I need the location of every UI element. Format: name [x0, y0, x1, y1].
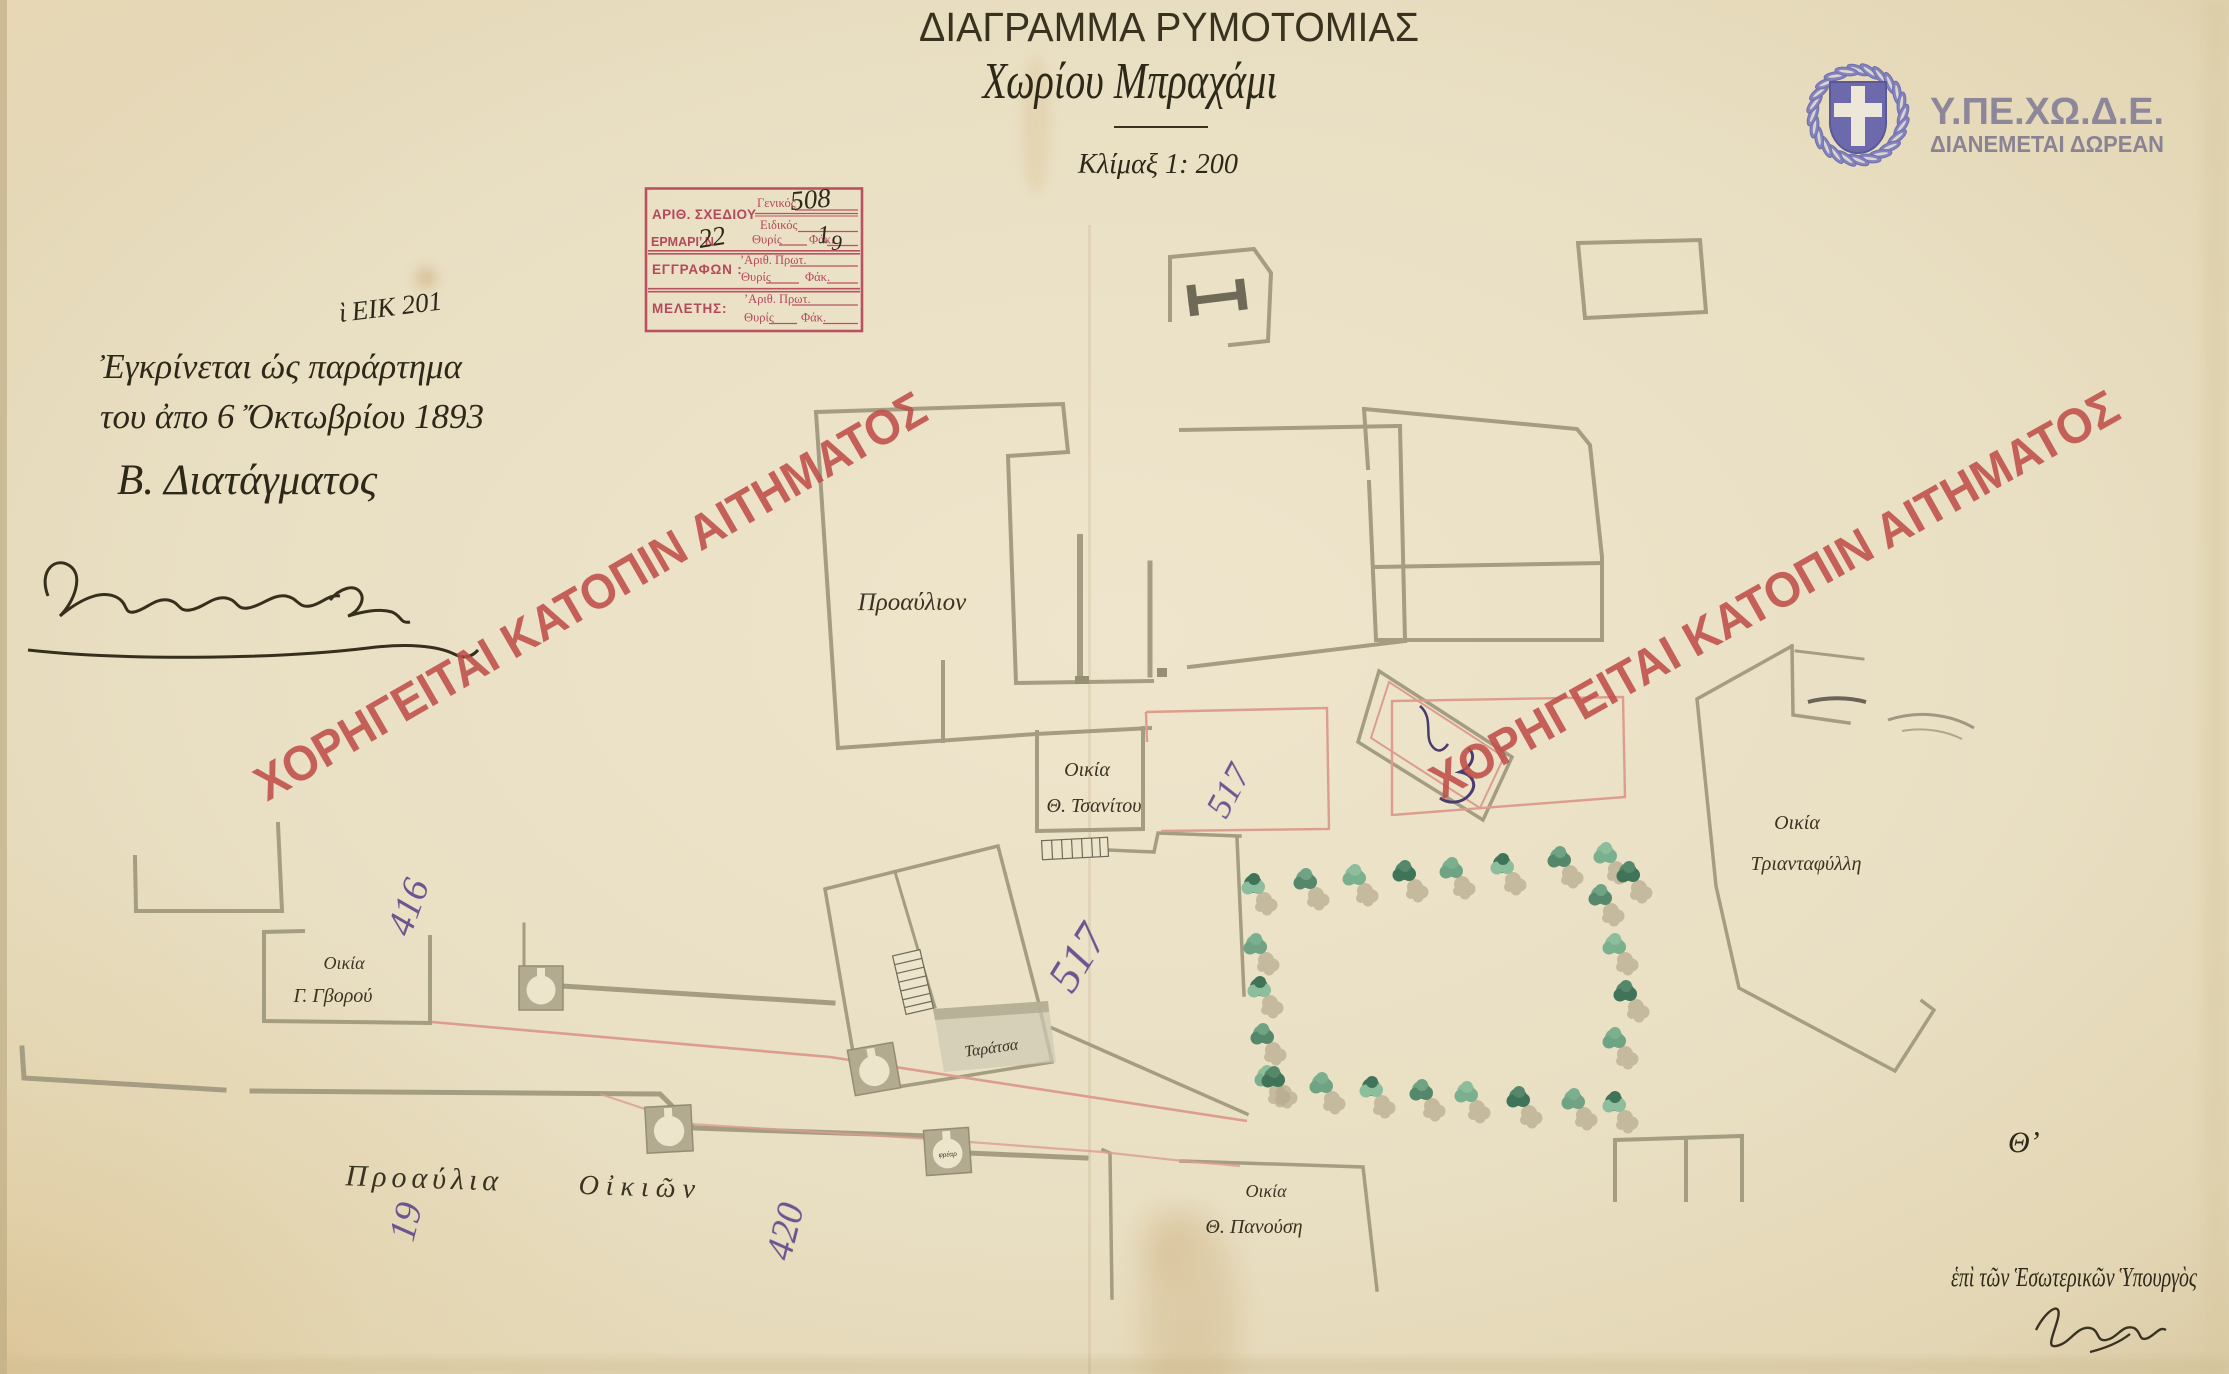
svg-text:του ἀπο 6 Ὄκτωβρίου 1893: του ἀπο 6 Ὄκτωβρίου 1893 [100, 397, 484, 436]
svg-text:ΔΙΑΓΡΑΜΜΑ ΡΥΜΟΤΟΜΙΑΣ: ΔΙΑΓΡΑΜΜΑ ΡΥΜΟΤΟΜΙΑΣ [919, 4, 1419, 50]
svg-text:Οικία: Οικία [1064, 759, 1110, 781]
svg-text:Τριανταφύλλη: Τριανταφύλλη [1751, 853, 1862, 875]
svg-text:Ειδικός: Ειδικός [760, 218, 798, 232]
svg-text:Β. Διατάγματος: Β. Διατάγματος [117, 457, 378, 504]
svg-text:Οικία: Οικία [1245, 1181, 1287, 1201]
svg-text:ἑπὶ τῶν Ἑσωτερικῶν Ὑπουργὸς: ἑπὶ τῶν Ἑσωτερικῶν Ὑπουργὸς [1951, 1262, 2198, 1292]
svg-text:Θυρίς: Θυρίς [741, 270, 771, 284]
svg-text:ΔΙΑΝΕΜΕΤΑΙ ΔΩΡΕΑΝ: ΔΙΑΝΕΜΕΤΑΙ ΔΩΡΕΑΝ [1930, 131, 2164, 157]
svg-text:Οικία: Οικία [323, 953, 365, 973]
svg-text:ʼΑριθ. Πρωτ.: ʼΑριθ. Πρωτ. [740, 253, 807, 267]
svg-text:Ἐγκρίνεται ώς παράρτημα: Ἐγκρίνεται ώς παράρτημα [100, 347, 463, 386]
svg-text:Προαύλια: Προαύλια [344, 1159, 504, 1198]
svg-text:22: 22 [696, 220, 727, 254]
svg-text:Θυρίς: Θυρίς [744, 311, 774, 325]
svg-text:1: 1 [817, 221, 831, 249]
svg-text:Υ.ΠΕ.ΧΩ.Δ.Ε.: Υ.ΠΕ.ΧΩ.Δ.Ε. [1930, 91, 2164, 133]
svg-text:Κλίμαξ 1: 200: Κλίμαξ 1: 200 [1077, 148, 1238, 180]
svg-text:ΕΓΓΡΑΦΩΝ :: ΕΓΓΡΑΦΩΝ : [652, 262, 743, 277]
svg-text:Θʼ: Θʼ [2008, 1126, 2040, 1159]
svg-text:Χωρίου Μπραχάμι: Χωρίου Μπραχάμι [981, 53, 1278, 110]
svg-text:Οἰκιῶν: Οἰκιῶν [578, 1170, 702, 1205]
svg-text:Προαύλιον: Προαύλιον [857, 589, 967, 616]
svg-text:508: 508 [789, 183, 832, 216]
svg-text:Θ. Πανούση: Θ. Πανούση [1205, 1216, 1302, 1238]
svg-text:φρέαρ: φρέαρ [938, 1149, 957, 1159]
svg-text:Φάκ.: Φάκ. [801, 311, 826, 325]
svg-text:Θ. Τσανίτου: Θ. Τσανίτου [1047, 795, 1142, 817]
svg-text:Θυρίς: Θυρίς [752, 233, 782, 247]
svg-text:Γ. Γβορού: Γ. Γβορού [293, 985, 373, 1007]
svg-text:9: 9 [831, 230, 842, 255]
svg-text:ΑΡΙΘ. ΣΧΕΔΙΟΥ: ΑΡΙΘ. ΣΧΕΔΙΟΥ [652, 207, 756, 222]
svg-text:ʼΑριθ. Πρωτ.: ʼΑριθ. Πρωτ. [744, 292, 811, 306]
svg-text:ΜΕΛΕΤΗΣ:: ΜΕΛΕΤΗΣ: [652, 301, 727, 316]
svg-text:Οικία: Οικία [1774, 812, 1820, 834]
svg-text:Φάκ.: Φάκ. [805, 270, 830, 284]
